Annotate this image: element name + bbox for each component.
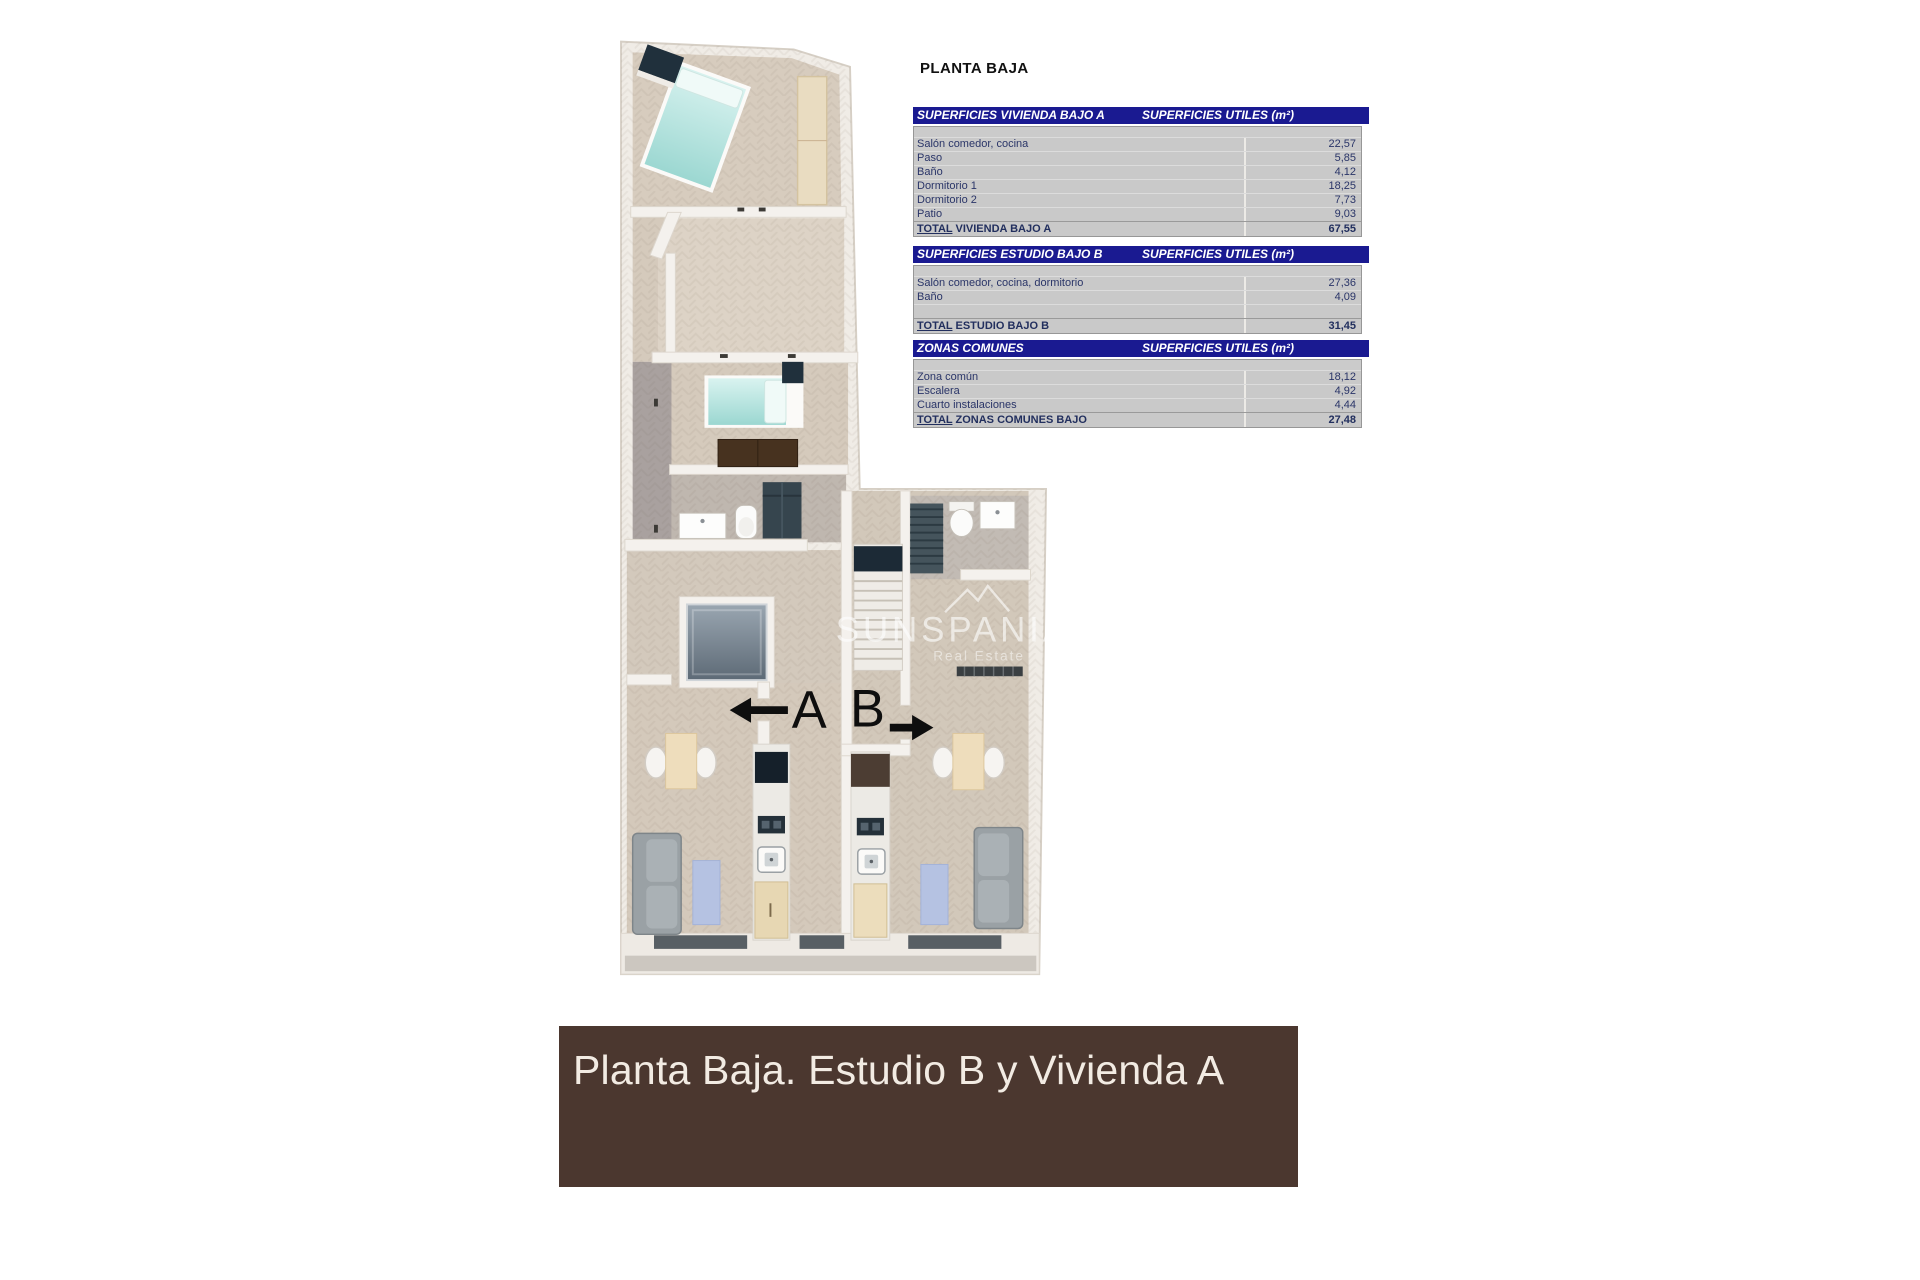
dark-wardrobe <box>718 439 798 466</box>
unit-a-label: A <box>792 682 827 740</box>
staircase <box>854 544 903 670</box>
sidewalk <box>625 956 1036 972</box>
watermark-brand: SUNSPANIA <box>836 610 1070 649</box>
watermark-tagline: Real Estate <box>933 649 1025 664</box>
flyer-page: PLANTA BAJA SUPERFICIES VIVIENDA BAJO A … <box>0 0 1920 1280</box>
kitchen-a <box>753 744 790 940</box>
rug-a <box>693 861 720 925</box>
table-units-header: SUPERFICIES UTILES (m²) <box>1142 246 1294 263</box>
caption-banner: Planta Baja. Estudio B y Vivienda A <box>559 1026 1298 1187</box>
kitchen-b <box>851 752 890 940</box>
entrance-thresholds <box>654 935 1001 949</box>
sofa-a <box>633 833 682 934</box>
wardrobe <box>798 77 827 205</box>
unit-b-label: B <box>850 681 885 739</box>
caption-text: Planta Baja. Estudio B y Vivienda A <box>573 1047 1224 1094</box>
sofa-b <box>974 828 1023 929</box>
rug-b <box>921 864 948 924</box>
floor-plan: A B SUNSPANIA Real Estate <box>500 30 1070 1010</box>
radiator <box>957 667 1023 677</box>
table-units-header: SUPERFICIES UTILES (m²) <box>1142 107 1294 124</box>
patio-lightwell <box>687 604 767 680</box>
table-units-header: SUPERFICIES UTILES (m²) <box>1142 340 1294 357</box>
